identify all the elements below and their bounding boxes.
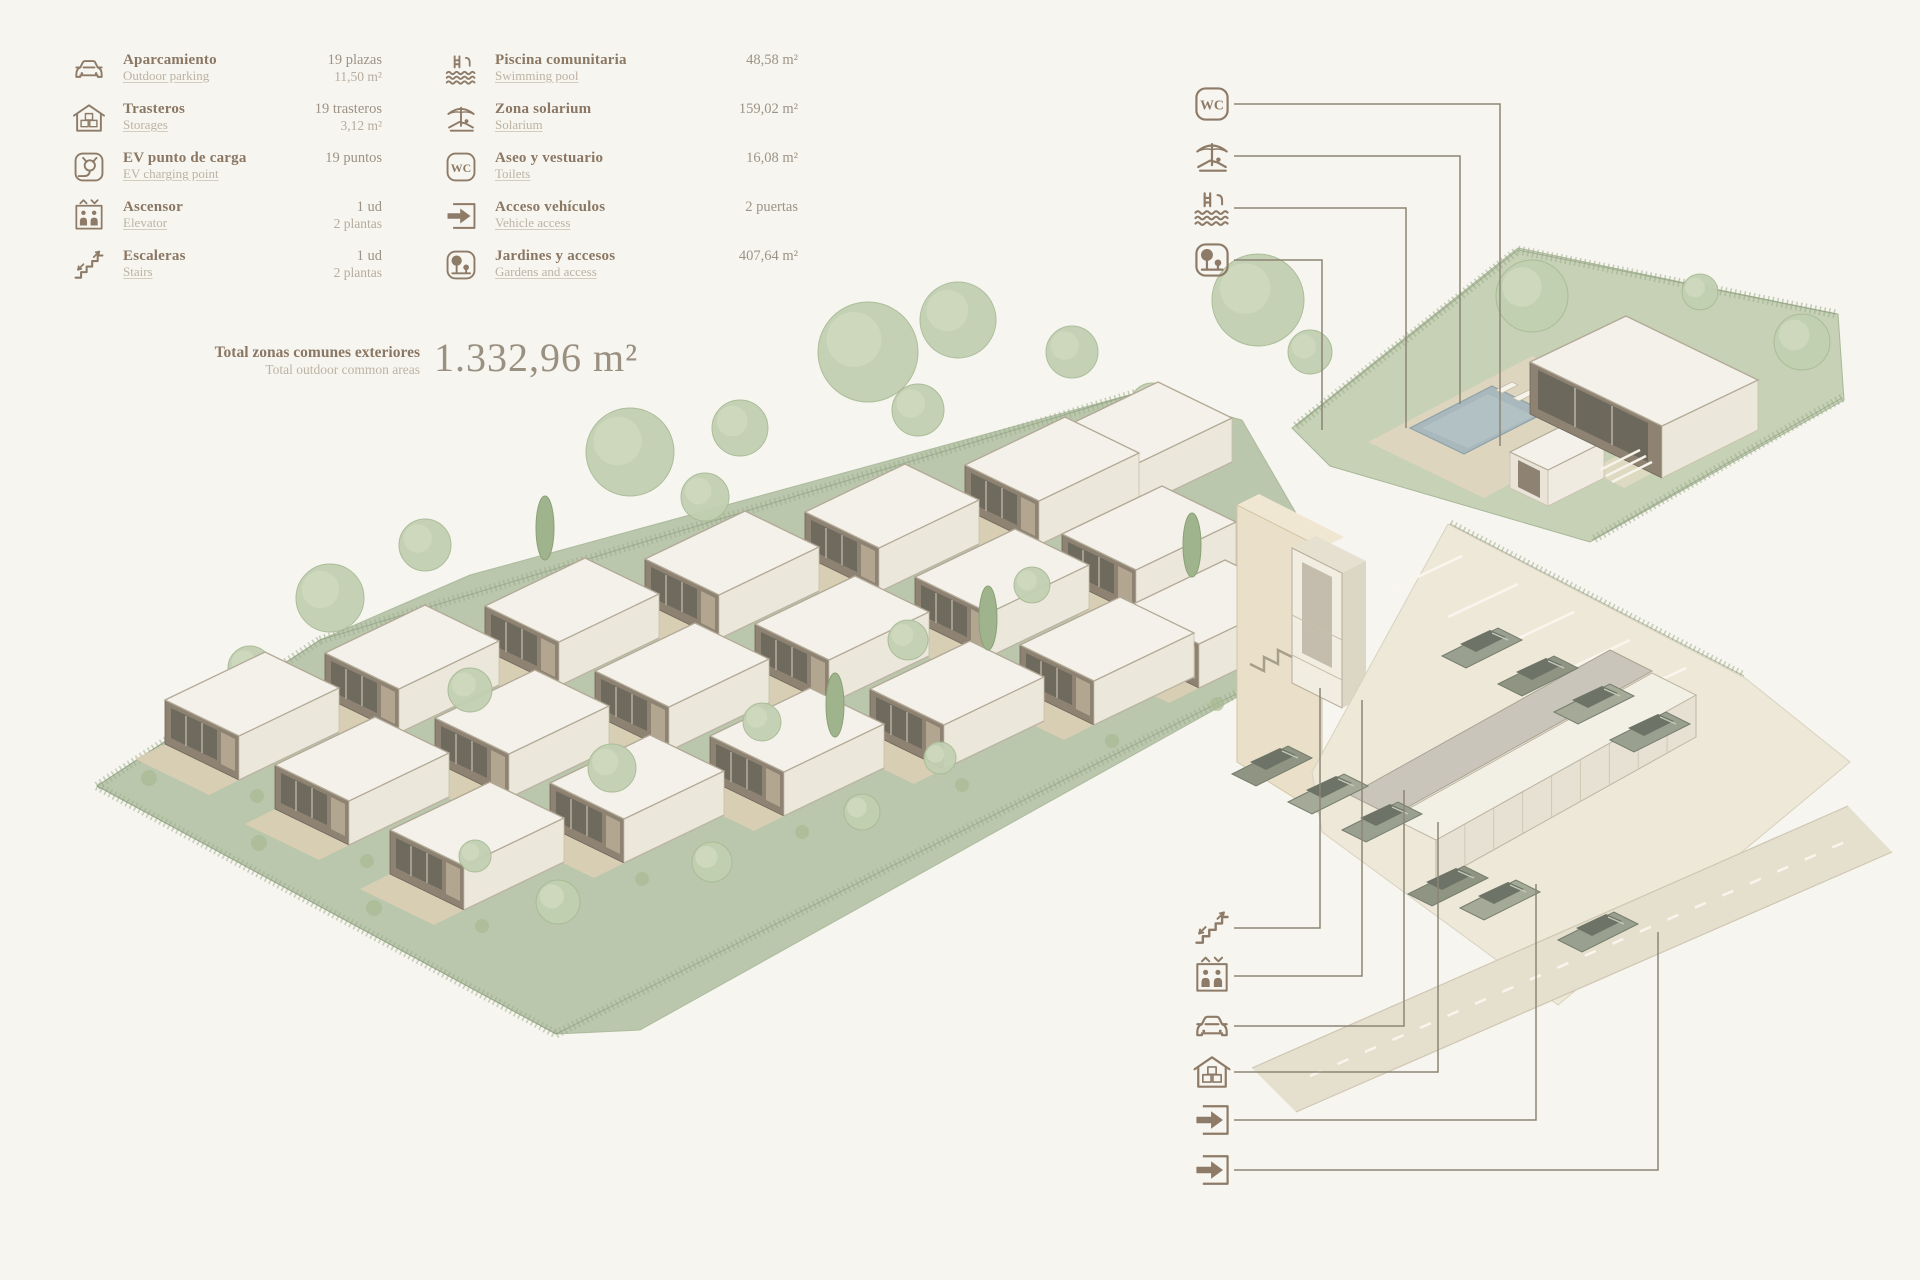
legend-value-2: 2 plantas bbox=[287, 216, 382, 232]
legend-item-stairs: EscalerasStairs 1 ud2 plantas bbox=[70, 246, 382, 286]
stairs-icon bbox=[70, 246, 108, 284]
pool-icon bbox=[1196, 193, 1228, 225]
legend-column-2: Piscina comunitariaSwimming pool 48,58 m… bbox=[442, 50, 798, 295]
stairs-icon bbox=[1196, 912, 1227, 942]
legend-value: 48,58 m² bbox=[703, 52, 798, 69]
car-icon bbox=[1197, 1017, 1226, 1035]
solarium-icon bbox=[442, 99, 480, 137]
legend-item-gardens: Jardines y accesosGardens and access 407… bbox=[442, 246, 798, 286]
legend-item-ev-charging: EV punto de cargaEV charging point 19 pu… bbox=[70, 148, 382, 188]
legend-title: Aparcamiento bbox=[123, 52, 275, 69]
legend-value-2: 11,50 m² bbox=[287, 69, 382, 85]
legend-value: 1 ud bbox=[287, 248, 382, 265]
legend-value: 407,64 m² bbox=[703, 248, 798, 265]
legend-subtitle: Toilets bbox=[495, 167, 663, 182]
legend-subtitle: Vehicle access bbox=[495, 216, 663, 231]
legend-subtitle: Stairs bbox=[123, 265, 275, 280]
legend-value: 16,08 m² bbox=[703, 150, 798, 167]
legend-item-vehicle-access: Acceso vehículosVehicle access 2 puertas bbox=[442, 197, 798, 237]
legend-item-elevator: AscensorElevator 1 ud2 plantas bbox=[70, 197, 382, 237]
legend-value: 159,02 m² bbox=[703, 101, 798, 118]
car-icon bbox=[70, 50, 108, 88]
legend-subtitle: Gardens and access bbox=[495, 265, 663, 280]
legend-subtitle: Swimming pool bbox=[495, 69, 663, 84]
legend-title: Ascensor bbox=[123, 199, 275, 216]
legend-subtitle: Storages bbox=[123, 118, 275, 133]
vehicle-access-icon bbox=[1196, 1106, 1227, 1134]
brochure-page: { "legend": { "col1": [ {"icon":"car-ico… bbox=[0, 0, 1920, 1280]
cypress-tree bbox=[979, 586, 997, 650]
pool-icon bbox=[442, 50, 480, 88]
legend-item-solarium: Zona solariumSolarium 159,02 m² bbox=[442, 99, 798, 139]
legend: AparcamientoOutdoor parking 19 plazas11,… bbox=[70, 50, 798, 295]
wc-icon bbox=[1196, 88, 1227, 119]
garden-icon bbox=[442, 246, 480, 284]
ev-icon bbox=[70, 148, 108, 186]
total-common-areas: Total zonas comunes exteriores Total out… bbox=[148, 338, 638, 378]
legend-column-1: AparcamientoOutdoor parking 19 plazas11,… bbox=[70, 50, 382, 295]
legend-title: Piscina comunitaria bbox=[495, 52, 663, 69]
solarium-icon bbox=[1197, 144, 1226, 171]
legend-title: Acceso vehículos bbox=[495, 199, 663, 216]
wc-icon bbox=[442, 148, 480, 186]
storage-icon bbox=[1195, 1057, 1230, 1086]
elevator-icon bbox=[70, 197, 108, 235]
legend-item-parking: AparcamientoOutdoor parking 19 plazas11,… bbox=[70, 50, 382, 90]
legend-value: 1 ud bbox=[287, 199, 382, 216]
legend-value: 2 puertas bbox=[703, 199, 798, 216]
legend-item-storages: TrasterosStorages 19 trasteros3,12 m² bbox=[70, 99, 382, 139]
elevator-icon bbox=[1197, 958, 1226, 991]
legend-title: Zona solarium bbox=[495, 101, 663, 118]
legend-value: 19 trasteros bbox=[287, 101, 382, 118]
total-title: Total zonas comunes exteriores bbox=[148, 344, 420, 362]
legend-item-pool: Piscina comunitariaSwimming pool 48,58 m… bbox=[442, 50, 798, 90]
storage-icon bbox=[70, 99, 108, 137]
vehicle-access-icon bbox=[442, 197, 480, 235]
legend-value: 19 puntos bbox=[287, 150, 382, 167]
legend-subtitle: Elevator bbox=[123, 216, 275, 231]
legend-title: Escaleras bbox=[123, 248, 275, 265]
legend-value: 19 plazas bbox=[287, 52, 382, 69]
total-subtitle: Total outdoor common areas bbox=[148, 362, 420, 378]
legend-subtitle: EV charging point bbox=[123, 167, 275, 182]
vehicle-access-icon bbox=[1196, 1156, 1227, 1184]
cypress-tree bbox=[1183, 513, 1201, 577]
legend-subtitle: Solarium bbox=[495, 118, 663, 133]
legend-title: EV punto de carga bbox=[123, 150, 275, 167]
legend-item-toilets: Aseo y vestuarioToilets 16,08 m² bbox=[442, 148, 798, 188]
legend-value-2: 2 plantas bbox=[287, 265, 382, 281]
legend-title: Jardines y accesos bbox=[495, 248, 663, 265]
legend-value-2: 3,12 m² bbox=[287, 118, 382, 134]
legend-title: Aseo y vestuario bbox=[495, 150, 663, 167]
cypress-tree bbox=[826, 673, 844, 737]
legend-subtitle: Outdoor parking bbox=[123, 69, 275, 84]
legend-title: Trasteros bbox=[123, 101, 275, 118]
total-value: 1.332,96 m² bbox=[434, 338, 638, 378]
cypress-tree bbox=[536, 496, 554, 560]
